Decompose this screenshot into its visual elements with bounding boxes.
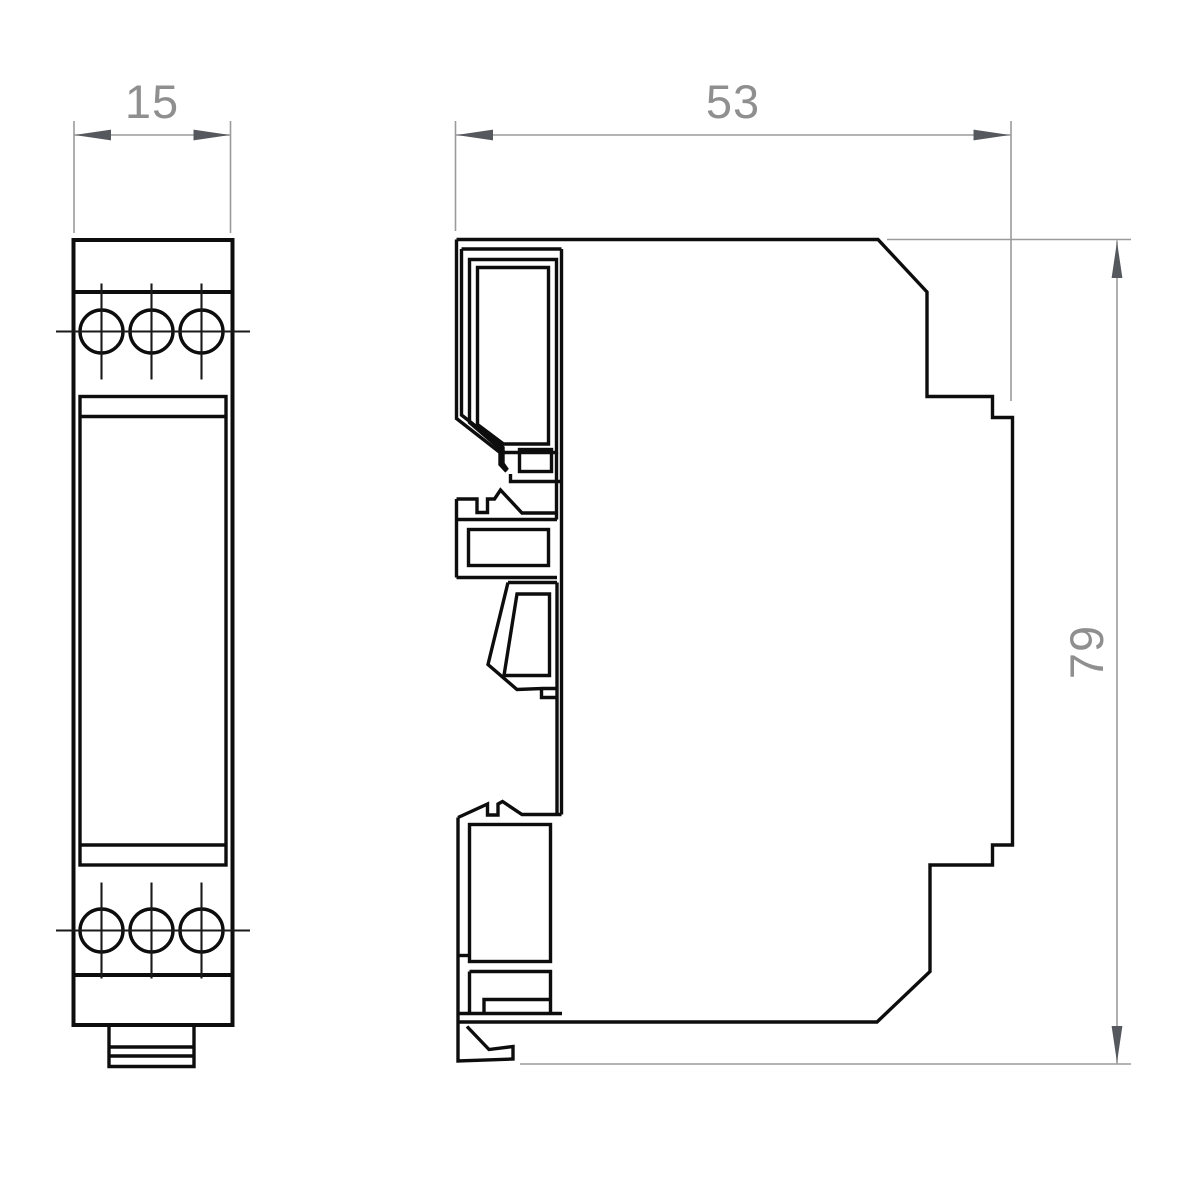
clip-step — [511, 474, 562, 482]
arrowhead-right — [194, 130, 231, 141]
technical-drawing: 15 53 79 — [0, 0, 1200, 1200]
rail-guide-top — [457, 490, 558, 513]
dimension-label-width: 15 — [125, 75, 179, 128]
module-body-outline — [74, 240, 233, 1025]
height-dimension: 79 — [520, 240, 1131, 1065]
lower-chamber-inner-line — [484, 1000, 551, 1014]
terminal-cavity-bottom — [470, 825, 551, 962]
drawing-canvas: 15 53 79 — [0, 0, 1200, 1200]
arrowhead-left — [457, 130, 494, 141]
mounting-foot-lines — [109, 1047, 194, 1056]
side-body-outline — [457, 240, 1013, 1023]
label-area — [80, 397, 226, 866]
clip-pawl — [488, 583, 557, 698]
rail-guide-bottom — [458, 802, 562, 818]
clip-pawl-inner — [504, 594, 550, 676]
rail-slot-inner — [469, 530, 549, 566]
arrowhead-right — [974, 130, 1011, 141]
arrowhead-bottom — [1112, 1026, 1123, 1063]
terminal-cavity-top-outer — [470, 260, 557, 453]
front-view — [56, 240, 250, 1067]
dimension-label-depth: 53 — [706, 75, 760, 128]
din-clip-hook — [458, 1022, 513, 1061]
side-view — [457, 240, 1013, 1062]
front-face-upper — [457, 240, 507, 472]
dimension-label-height: 79 — [1060, 625, 1113, 679]
lower-chamber — [470, 972, 551, 1014]
terminal-cavity-top-inner — [478, 268, 549, 445]
arrowhead-top — [1112, 242, 1123, 279]
arrowhead-left — [75, 130, 112, 141]
width-dimension: 15 — [74, 75, 231, 233]
